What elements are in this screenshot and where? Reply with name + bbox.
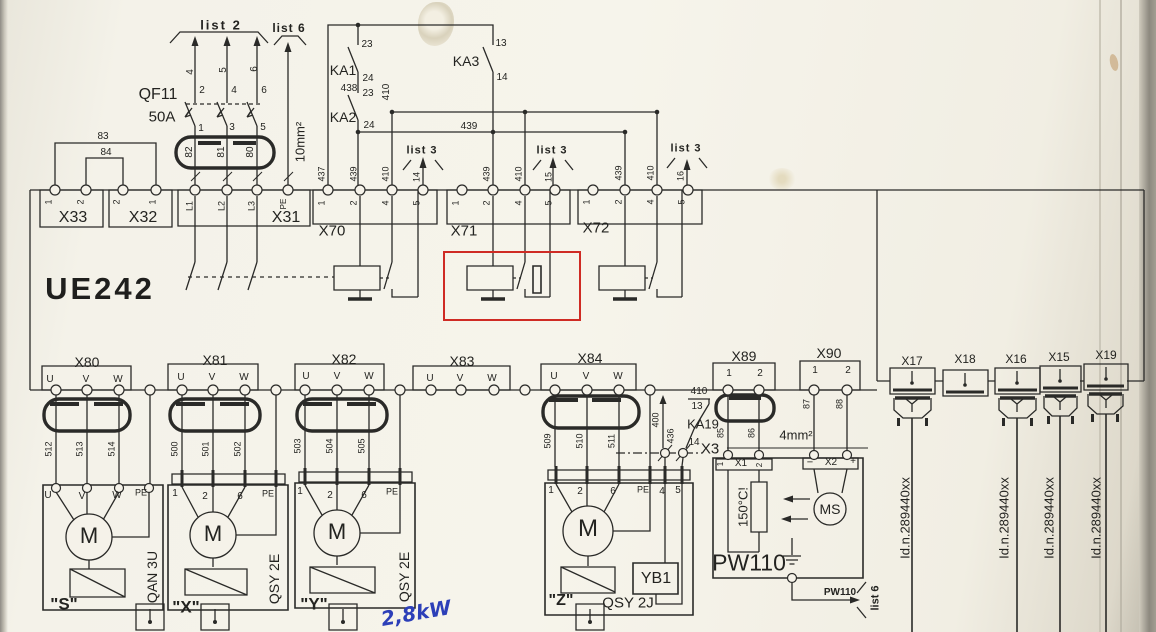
ka1-label: KA1: [330, 63, 356, 77]
list6-ref: list 6: [871, 585, 882, 610]
ka19-circuit: [616, 395, 868, 466]
list3-ref-c: list 3: [670, 144, 701, 155]
qf11-pole2: 2: [199, 86, 205, 96]
x72-t5: 5: [678, 199, 687, 204]
motor-y-type: QSY 2E: [397, 552, 411, 602]
x31-l3: L3: [248, 201, 257, 211]
list2-label: list 2: [200, 19, 242, 32]
wire-439-x70: 439: [350, 166, 359, 181]
right-connector-section: [877, 190, 1144, 632]
x31-label: X31: [272, 210, 300, 226]
x31-pe: PE: [280, 199, 288, 210]
axis-s-name: "S": [50, 596, 77, 613]
wire-504: 504: [326, 438, 335, 453]
wire-15: 15: [545, 172, 554, 182]
x71-label: X71: [451, 224, 478, 239]
wire-86: 86: [748, 428, 757, 438]
x32-label: X32: [129, 210, 157, 226]
wire-81: 81: [217, 146, 227, 157]
wire-16: 16: [677, 171, 686, 181]
x83-w: W: [487, 374, 496, 384]
idn-cable-2: Id.n.289440xx: [998, 477, 1011, 559]
motor-s-pe: PE: [135, 489, 147, 498]
motor-x-1: 1: [172, 489, 178, 499]
wire-501: 501: [202, 441, 211, 456]
motor-x-m: M: [204, 523, 222, 545]
wire-514: 514: [108, 441, 117, 456]
ka19-label: KA19: [687, 418, 719, 431]
wire-500: 500: [171, 441, 180, 456]
x1-t1: 1: [717, 462, 725, 466]
ka2-label: KA2: [330, 110, 356, 124]
x90-t2: 2: [845, 366, 851, 376]
wire-14: 14: [413, 172, 422, 182]
motor-s-v: V: [79, 492, 86, 502]
x16-label: X16: [1005, 353, 1026, 365]
motor-z-m: M: [578, 517, 598, 541]
qf11-pole3: 3: [229, 123, 235, 133]
wire-439-x71: 439: [483, 166, 492, 181]
wire-400: 400: [652, 412, 661, 427]
qf11-pole5: 5: [260, 123, 266, 133]
x81-w: W: [239, 373, 248, 383]
arrow-num-5: 5: [219, 67, 229, 73]
x82-label: X82: [332, 352, 357, 366]
x70-t4: 4: [382, 200, 391, 205]
x33-t1: 1: [45, 199, 54, 204]
x71-t1: 1: [452, 200, 461, 205]
wire-87: 87: [803, 399, 812, 409]
wire-gauge-10mm: 10mm²: [294, 122, 307, 162]
x84-v: V: [583, 372, 590, 382]
x89-t1: 1: [726, 369, 732, 379]
ka3-14: 14: [496, 73, 507, 83]
x70-t2: 2: [350, 200, 359, 205]
motor-s-u: U: [44, 491, 51, 501]
motor-z-4: 4: [659, 487, 665, 497]
x81-v: V: [209, 373, 216, 383]
x80-u: U: [46, 375, 53, 385]
x70-t1: 1: [318, 200, 327, 205]
x72-t1: 1: [583, 199, 592, 204]
wire-83: 83: [97, 132, 108, 142]
wire-511: 511: [608, 434, 617, 448]
axis-x-name: "X": [172, 599, 199, 616]
motor-z-6: 6: [610, 487, 616, 497]
wire-410-x72: 410: [647, 165, 656, 180]
thermal-150c: 150°C!: [737, 487, 750, 527]
idn-cable-4: Id.n.289440xx: [1090, 477, 1103, 559]
lower-bus: [30, 361, 877, 484]
motor-y-m: M: [328, 521, 346, 543]
wire-438: 438: [341, 84, 358, 94]
axis-y-name: "Y": [300, 596, 327, 613]
motor-x-type: QSY 2E: [267, 554, 281, 604]
wire-88: 88: [836, 399, 845, 409]
motor-x-6: 6: [237, 492, 243, 502]
wire-502: 502: [234, 441, 243, 456]
motor-y-2: 2: [327, 491, 333, 501]
x71-t4: 4: [515, 200, 524, 205]
x90-t1: 1: [812, 366, 818, 376]
ka2-24: 24: [363, 121, 374, 131]
motor-x-pe: PE: [262, 490, 274, 499]
motor-s-w: W: [112, 491, 121, 501]
x18-label: X18: [954, 353, 975, 365]
motor-z-1: 1: [548, 486, 554, 496]
motor-z-pe: PE: [637, 486, 649, 495]
x89-t2: 2: [757, 369, 763, 379]
qf11-breaker-symbol: [55, 32, 306, 185]
x82-w: W: [364, 372, 373, 382]
wire-436: 436: [667, 428, 676, 443]
wire-84: 84: [100, 148, 111, 158]
x70-t5: 5: [413, 200, 422, 205]
ka2-23: 23: [362, 89, 373, 99]
motor-z-2: 2: [577, 487, 583, 497]
wire-509: 509: [544, 433, 553, 448]
qf11-rating: 50A: [149, 110, 176, 125]
x80-label: X80: [75, 355, 100, 369]
schematic-page: UE242 list 2list 6QF1150A246456135828180…: [0, 0, 1156, 632]
x83-u: U: [426, 374, 433, 384]
wire-gauge-4mm: 4mm²: [779, 429, 812, 442]
motor-y-1: 1: [297, 487, 303, 497]
motor-s-type: QAN 3U: [145, 551, 159, 603]
contactor-row: [186, 190, 682, 299]
wire-437: 437: [318, 166, 327, 181]
wire-410-tag: 410: [691, 387, 708, 397]
wire-410-riser: 410: [382, 84, 392, 101]
ka1-24: 24: [362, 74, 373, 84]
x83-label: X83: [450, 354, 475, 368]
ka1-23: 23: [361, 40, 372, 50]
x2-minus: −: [807, 458, 813, 469]
x84-w: W: [613, 372, 622, 382]
x1-t2: 2: [756, 463, 764, 467]
x2-label: X2: [825, 458, 837, 468]
ka19-13: 13: [691, 402, 702, 412]
x70-label: X70: [319, 224, 346, 239]
qf11-pole1: 1: [198, 124, 204, 134]
wire-439-line: 439: [461, 122, 478, 132]
ka19-14: 14: [688, 438, 699, 448]
wire-510: 510: [576, 433, 585, 448]
x81-label: X81: [203, 353, 228, 367]
x32-t1: 1: [149, 199, 158, 204]
yb1-label: YB1: [641, 571, 671, 587]
pw110-wire-label: PW110: [824, 588, 856, 598]
list3-ref-b: list 3: [536, 146, 567, 157]
list3-ref-a: list 3: [406, 146, 437, 157]
idn-cable-3: Id.n.289440xx: [1043, 477, 1056, 559]
x3-label: X3: [701, 442, 719, 457]
x33-label: X33: [59, 210, 87, 226]
pw110-label: PW110: [712, 552, 786, 575]
x84-u: U: [550, 372, 557, 382]
x83-v: V: [457, 374, 464, 384]
motor-y-6: 6: [361, 491, 367, 501]
qf11-pole4: 4: [231, 86, 237, 96]
wire-80: 80: [246, 146, 256, 157]
highlight-box: [443, 251, 581, 321]
x82-v: V: [334, 372, 341, 382]
x89-label: X89: [732, 349, 757, 363]
motor-z-type: QSY 2J: [602, 596, 653, 611]
ka3-13: 13: [495, 39, 506, 49]
x15-label: X15: [1048, 351, 1069, 363]
x80-v: V: [83, 375, 90, 385]
x81-u: U: [177, 373, 184, 383]
arrow-num-6: 6: [250, 66, 260, 72]
x72-t4: 4: [647, 199, 656, 204]
x31-l1: L1: [186, 201, 195, 211]
x72-t2: 2: [615, 199, 624, 204]
x84-label: X84: [578, 351, 603, 365]
motor-z-5: 5: [675, 486, 681, 496]
motor-y-pe: PE: [386, 488, 398, 497]
motor-s-m: M: [80, 525, 98, 547]
ka-control-circuit: [328, 23, 707, 185]
list6-label: list 6: [272, 22, 305, 34]
drawing-title: UE242: [45, 271, 155, 307]
x17-label: X17: [901, 355, 922, 367]
ka3-label: KA3: [453, 54, 479, 68]
motor-x-2: 2: [202, 492, 208, 502]
wire-82: 82: [185, 146, 195, 157]
x80-w: W: [113, 375, 122, 385]
qf11-label: QF11: [139, 87, 178, 103]
wire-505: 505: [358, 438, 367, 453]
x72-label: X72: [583, 221, 610, 236]
x71-t2: 2: [483, 200, 492, 205]
arrow-num-4: 4: [186, 69, 196, 75]
x1-label: X1: [735, 459, 747, 469]
wire-512: 512: [45, 441, 54, 456]
bus-terminals: [50, 185, 852, 583]
wire-503: 503: [294, 438, 303, 453]
ms-label: MS: [820, 502, 841, 516]
x33-t2: 2: [77, 199, 86, 204]
wire-439-x72: 439: [615, 165, 624, 180]
idn-cable-1: Id.n.289440xx: [899, 477, 912, 559]
x2-plus: +: [850, 457, 856, 467]
wire-410-x70: 410: [382, 166, 391, 181]
wire-513: 513: [76, 441, 85, 456]
x71-t5: 5: [545, 200, 554, 205]
x82-u: U: [302, 372, 309, 382]
x19-label: X19: [1095, 349, 1116, 361]
axis-z-name: "Z": [549, 593, 574, 609]
x31-l2: L2: [218, 201, 227, 211]
x32-t2: 2: [113, 199, 122, 204]
x90-label: X90: [817, 346, 842, 360]
wire-410-x71: 410: [515, 166, 524, 181]
qf11-pole6: 6: [261, 86, 267, 96]
